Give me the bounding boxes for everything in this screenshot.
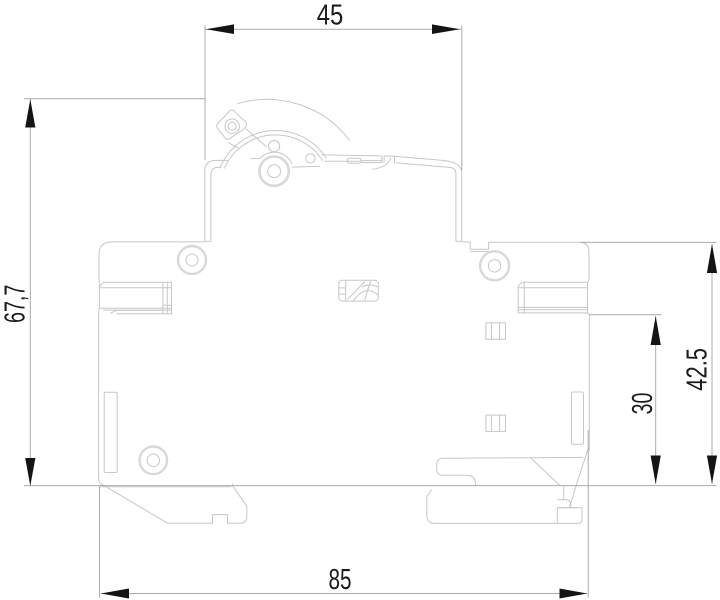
svg-text:45: 45: [317, 0, 344, 31]
svg-text:30: 30: [627, 393, 659, 415]
svg-text:67,7: 67,7: [0, 285, 32, 323]
svg-text:85: 85: [329, 564, 352, 596]
svg-text:42.5: 42.5: [682, 348, 714, 391]
